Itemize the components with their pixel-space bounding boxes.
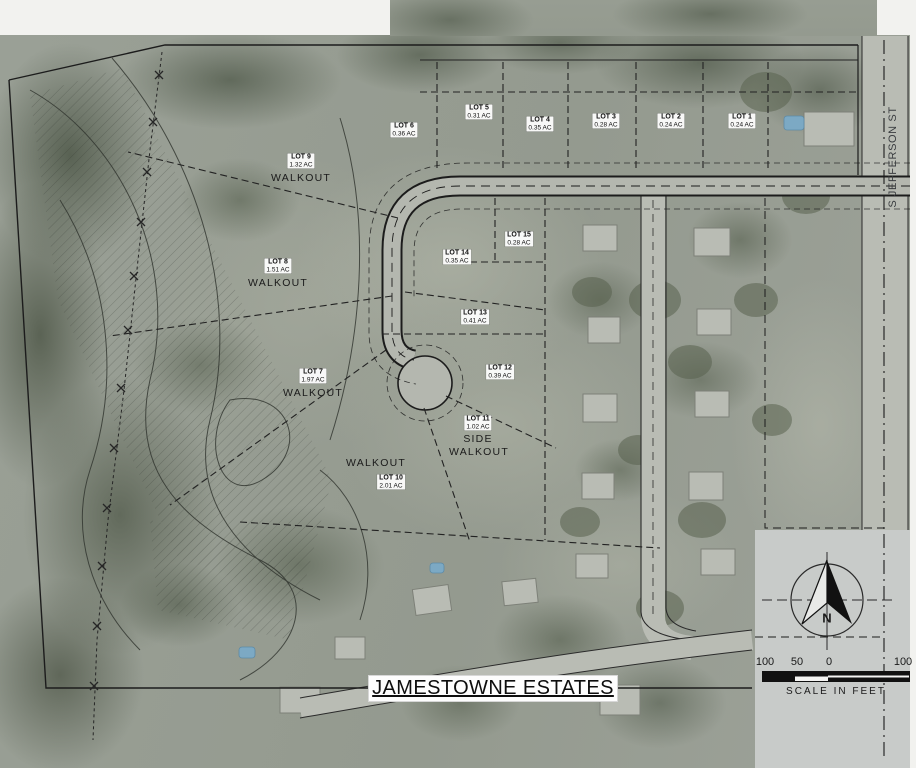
lot-label: LOT 8 1.51 AC [264, 258, 291, 273]
lot-label: LOT 5 0.31 AC [465, 104, 492, 119]
walkout-note: SIDE WALKOUT [449, 433, 507, 459]
lot-label: LOT 12 0.39 AC [486, 364, 514, 379]
scale-tick: 0 [826, 656, 832, 668]
scale-tick: 50 [791, 656, 803, 668]
lot-label: LOT 14 0.35 AC [443, 249, 471, 264]
lot-label: LOT 11 1.02 AC [464, 415, 491, 430]
lot-label: LOT 13 0.41 AC [461, 309, 489, 324]
walkout-note: WALKOUT [283, 387, 343, 399]
lot-label: LOT 1 0.24 AC [728, 113, 755, 128]
scale-caption: SCALE IN FEET [786, 686, 886, 697]
lot-label: LOT 6 0.36 AC [390, 122, 417, 137]
walkout-note: WALKOUT [346, 457, 406, 469]
lot-label: LOT 9 1.32 AC [287, 153, 314, 168]
north-label: N [822, 611, 831, 626]
walkout-note: WALKOUT [271, 172, 331, 184]
lot-label: LOT 4 0.35 AC [526, 116, 553, 131]
plat-map-page: { "map": { "title": "JAMESTOWNE ESTATES"… [0, 0, 916, 768]
scale-tick: 100 [894, 656, 912, 668]
lot-label: LOT 10 2.01 AC [377, 474, 405, 489]
street-label-jefferson: S JEFFERSON ST [887, 106, 899, 207]
scale-tick: 100 [756, 656, 774, 668]
aerial-photo-top-strip [390, 0, 877, 36]
lot-label: LOT 3 0.28 AC [592, 113, 619, 128]
subdivision-title: JAMESTOWNE ESTATES [368, 675, 618, 702]
lot-label: LOT 15 0.28 AC [505, 231, 533, 246]
lot-label: LOT 7 1.97 AC [299, 368, 326, 383]
scale-bar [762, 671, 910, 682]
legend-panel [755, 530, 910, 768]
lot-label: LOT 2 0.24 AC [657, 113, 684, 128]
walkout-note: WALKOUT [248, 277, 308, 289]
